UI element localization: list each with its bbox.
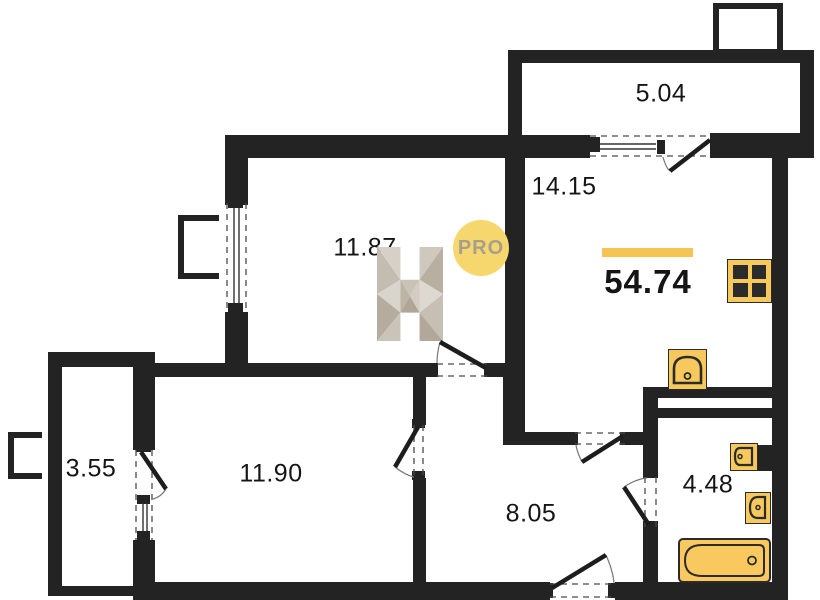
- door-jamb: [620, 432, 630, 445]
- wall-segment: [133, 582, 550, 600]
- area-label-kitchen-living: 14.15: [531, 173, 596, 202]
- pro-badge: PRO: [453, 220, 509, 276]
- area-label-room-bottom: 11.90: [239, 460, 302, 489]
- kitchen-sink-icon: [668, 349, 707, 390]
- total-area-label: 54.74: [604, 263, 692, 301]
- washbasin-icon: [730, 443, 758, 471]
- wall-segment: [508, 50, 814, 63]
- door-jamb: [643, 469, 658, 478]
- door-jamb: [657, 140, 665, 154]
- area-label-bathroom: 4.48: [683, 471, 734, 500]
- area-label-hallway: 8.05: [506, 500, 557, 529]
- stove-icon: [727, 259, 772, 303]
- exterior-box: [8, 432, 42, 479]
- door-jamb: [544, 583, 553, 598]
- logo-watermark-h: [377, 247, 443, 341]
- door-jamb: [228, 303, 243, 313]
- wall-segment: [133, 363, 437, 377]
- door-jamb: [228, 198, 243, 208]
- door-jamb: [412, 471, 425, 480]
- roof-shaft-box: [713, 3, 783, 55]
- wall-segment: [133, 352, 155, 450]
- door-jamb: [136, 447, 151, 452]
- toilet-icon: [745, 492, 771, 524]
- wall-segment: [710, 133, 814, 158]
- door-jamb: [137, 495, 150, 504]
- floor-plan: PRO 5.04 14.15 11.87 54.74 3.55 11.90 8.…: [0, 0, 820, 600]
- total-area-accent-bar: [602, 248, 693, 257]
- door-jamb: [137, 531, 150, 540]
- wall-segment: [643, 387, 788, 398]
- wall-segment: [658, 408, 788, 418]
- wall-segment: [643, 387, 658, 477]
- wall-nib: [757, 445, 773, 471]
- door-jamb: [412, 419, 425, 428]
- wall-segment: [413, 377, 426, 425]
- wall-segment: [225, 135, 248, 205]
- door-jamb: [429, 363, 438, 377]
- exterior-box: [178, 215, 219, 279]
- door-jamb: [589, 137, 600, 152]
- wall-segment: [503, 432, 575, 445]
- door-jamb: [608, 583, 617, 598]
- wall-segment: [48, 586, 135, 596]
- wall-segment: [48, 352, 143, 367]
- wall-segment: [48, 352, 62, 596]
- wall-segment: [225, 135, 590, 158]
- wall-segment: [225, 312, 248, 365]
- wall-segment: [772, 150, 788, 600]
- area-label-balcony-top: 5.04: [636, 80, 687, 109]
- door-jamb: [484, 363, 493, 377]
- door-jamb: [643, 521, 658, 530]
- door-jamb: [570, 432, 578, 445]
- bathtub-icon: [678, 538, 771, 583]
- area-label-balcony-left: 3.55: [66, 455, 117, 484]
- wall-segment: [508, 50, 522, 135]
- wall-segment: [413, 478, 426, 582]
